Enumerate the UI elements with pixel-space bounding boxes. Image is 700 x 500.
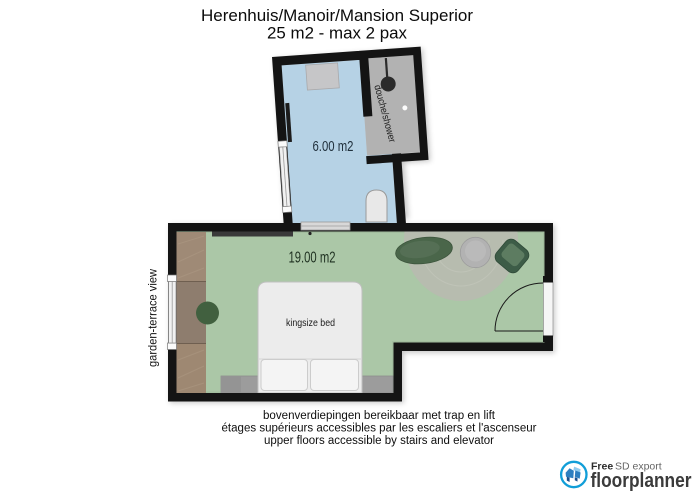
svg-text:25 m2 - max 2 pax: 25 m2 - max 2 pax [267, 25, 408, 43]
svg-text:19.00 m2: 19.00 m2 [289, 250, 336, 267]
svg-text:Herenhuis/Manoir/Mansion Super: Herenhuis/Manoir/Mansion Superior [201, 7, 474, 25]
svg-text:garden-terrace view: garden-terrace view [146, 269, 160, 367]
svg-text:bovenverdiepingen bereikbaar m: bovenverdiepingen bereikbaar met trap en… [263, 410, 496, 422]
svg-text:floorplanner: floorplanner [591, 470, 692, 492]
svg-text:étages supérieurs accessibles: étages supérieurs accessibles par les es… [222, 423, 537, 435]
svg-text:kingsize bed: kingsize bed [286, 318, 335, 329]
svg-text:upper floors accessible by sta: upper floors accessible by stairs and el… [264, 435, 494, 447]
svg-text:6.00 m2: 6.00 m2 [313, 139, 354, 155]
